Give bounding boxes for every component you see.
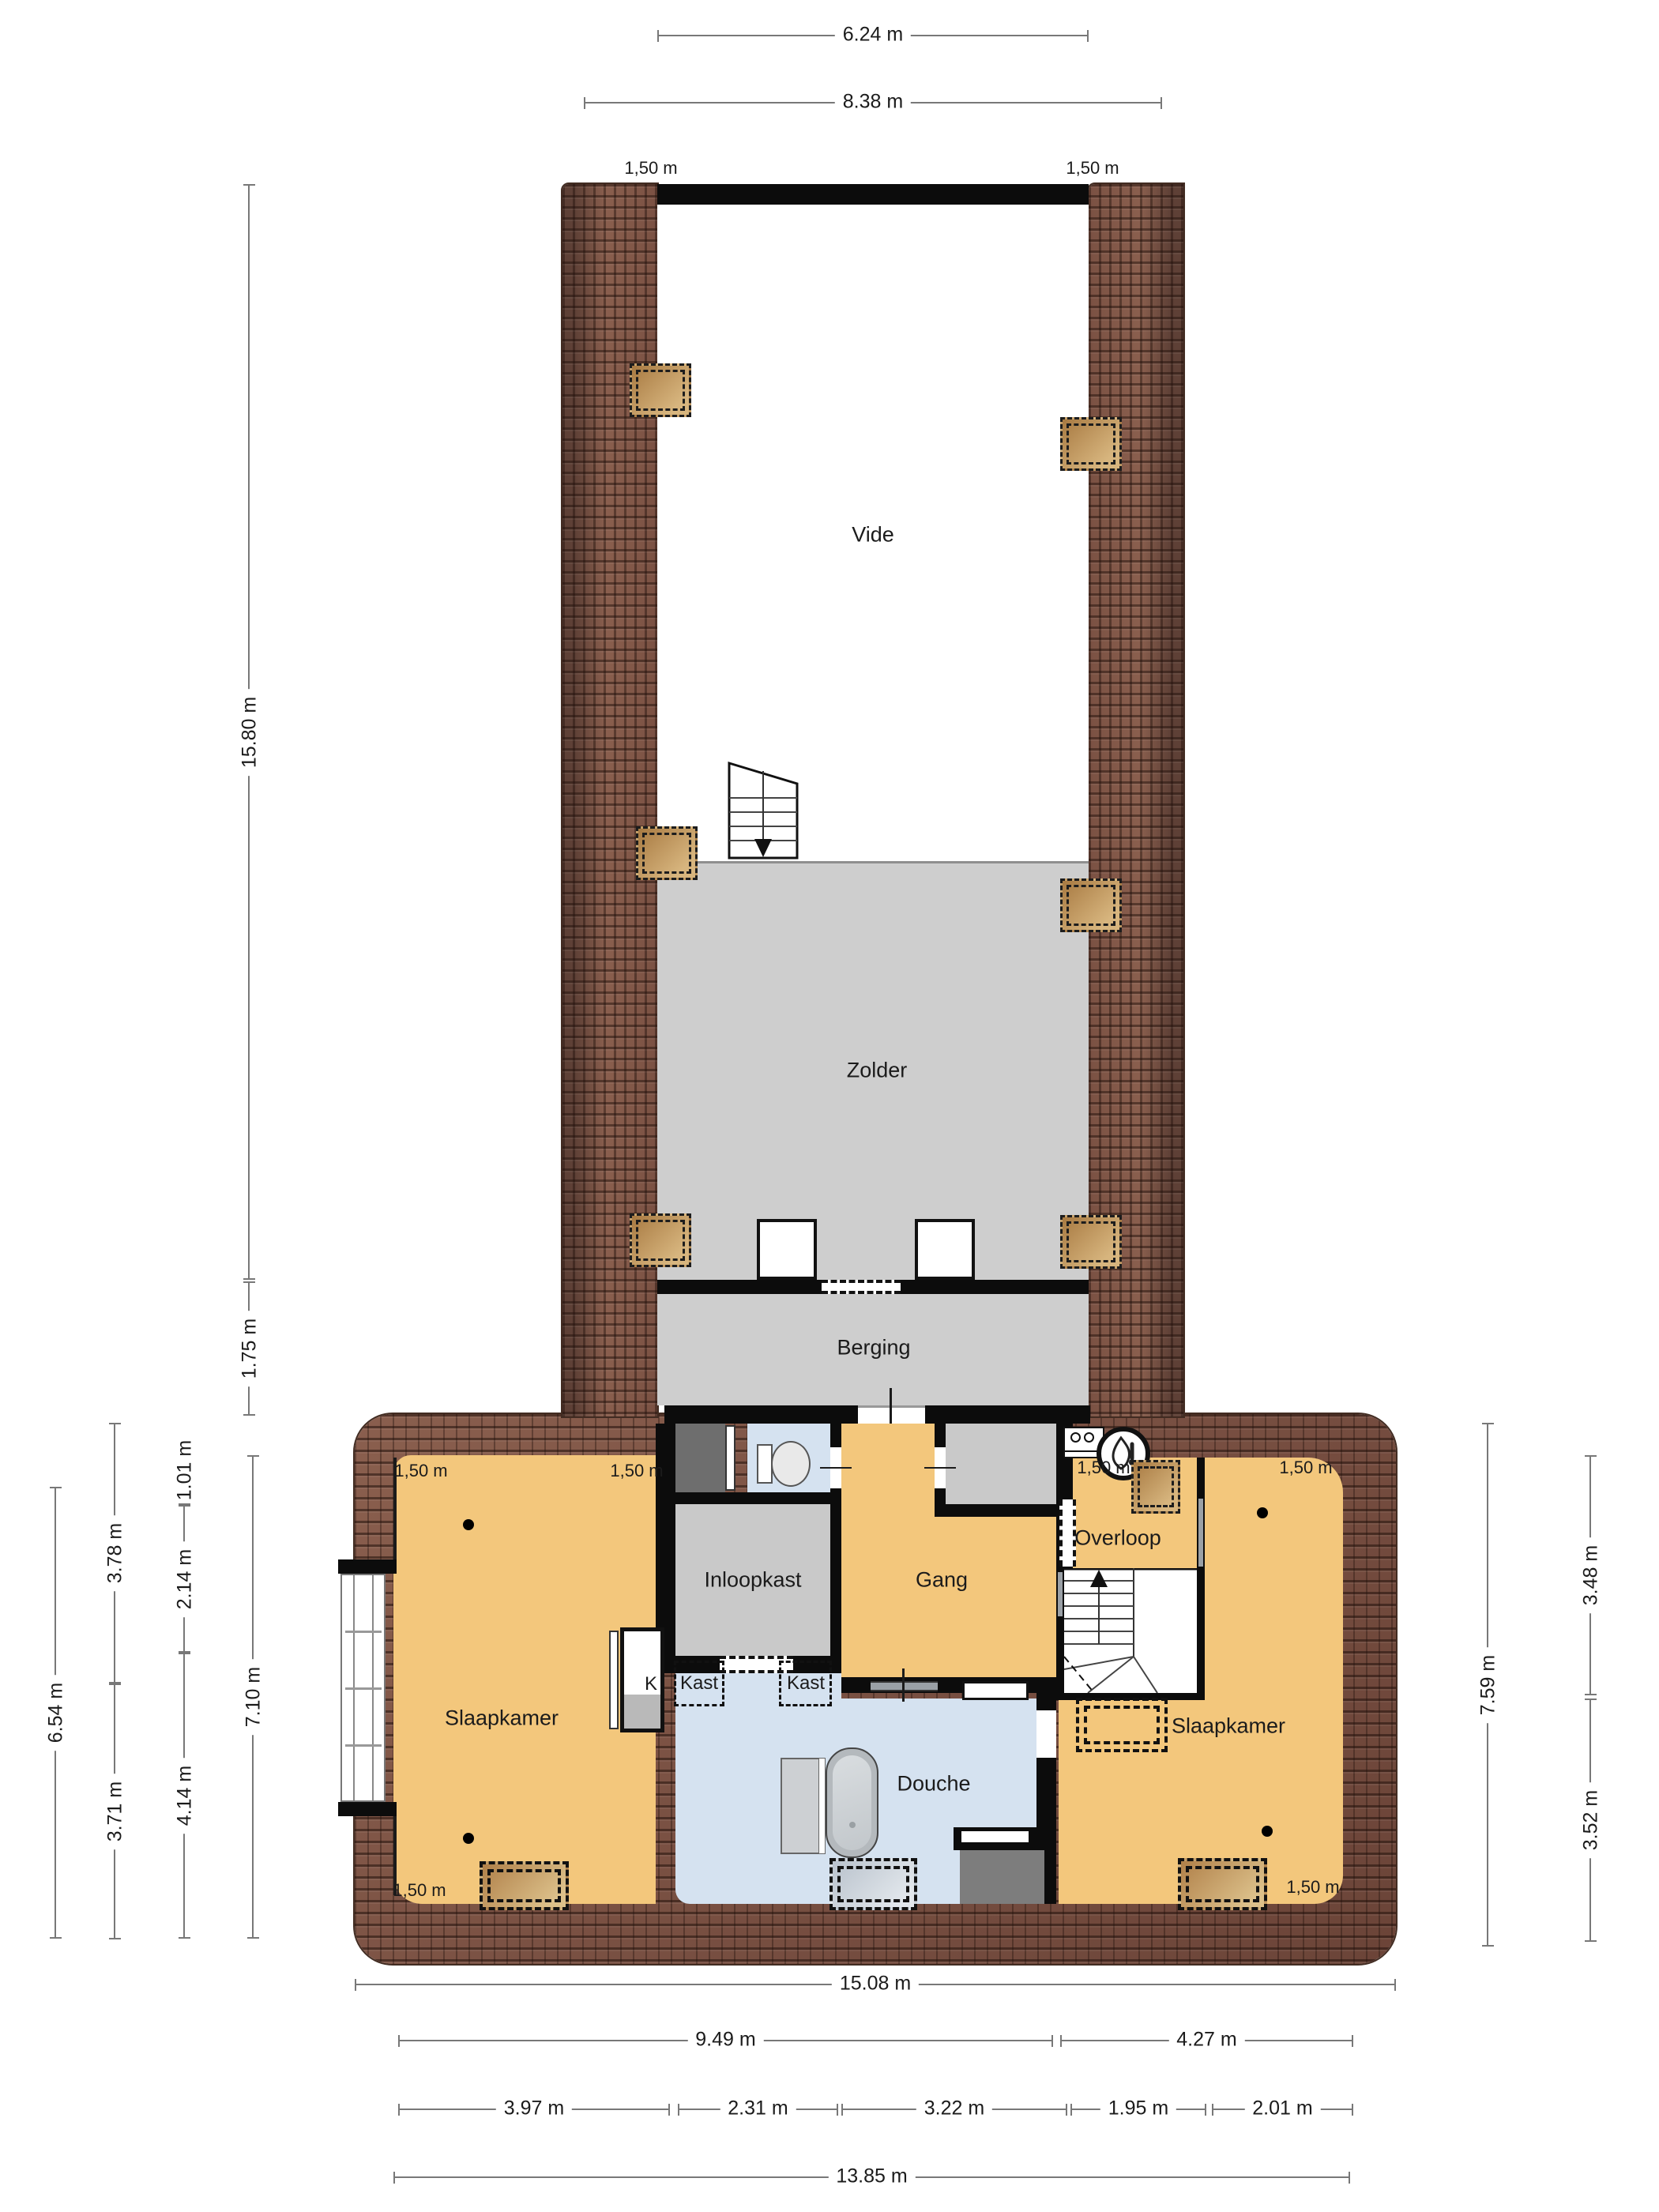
ceiling-light-dot	[463, 1833, 474, 1844]
room-label-vide: Vide	[852, 523, 894, 547]
dimension-line: 6.24 m	[657, 35, 1089, 36]
window-divider	[345, 1744, 382, 1747]
vanity-icon	[781, 1758, 822, 1854]
dimension-line: 8.38 m	[584, 102, 1162, 103]
wall	[935, 1504, 1073, 1517]
skylight-icon	[636, 826, 698, 880]
height-line-label: 1,50 m	[1077, 1458, 1130, 1478]
dormer-outline	[829, 1858, 917, 1910]
dimension-line: 7.59 m	[1487, 1423, 1488, 1947]
opening-gang-overloop	[1059, 1499, 1076, 1567]
dimension-line: 3.48 m	[1589, 1455, 1591, 1695]
room-label-kast-left: Kast	[680, 1672, 718, 1695]
dimension-line: 3.52 m	[1589, 1698, 1591, 1942]
wall	[656, 1492, 841, 1504]
ceiling-light-dot	[463, 1519, 474, 1530]
skylight-icon	[1060, 417, 1122, 471]
dimension-label: 3.52 m	[1579, 1782, 1604, 1858]
dormer-outline	[480, 1861, 569, 1910]
dormer-box-right	[915, 1219, 975, 1280]
dimension-line: 1.75 m	[248, 1281, 250, 1416]
height-line-label: 1,50 m	[624, 158, 677, 179]
washer-knob	[1070, 1432, 1081, 1443]
dimension-label: 7.10 m	[242, 1659, 266, 1735]
washer-knob	[1084, 1432, 1094, 1443]
room-slaapkamer-right-upper	[1205, 1458, 1343, 1904]
closet-k	[620, 1627, 664, 1732]
dimension-line: 15.08 m	[355, 1984, 1396, 1985]
vanity-door	[818, 1758, 826, 1854]
room-label-k: K	[645, 1673, 657, 1695]
skylight-icon	[1131, 1460, 1180, 1514]
dimension-label: 1.95 m	[1100, 2097, 1176, 2121]
staircase-up-icon	[1064, 1568, 1197, 1693]
skylight-icon	[1060, 1215, 1122, 1269]
toilet-bowl-icon	[771, 1441, 811, 1487]
glass-panel	[1058, 1572, 1063, 1616]
bathtub-drain	[849, 1822, 856, 1828]
room-label-berging: Berging	[837, 1336, 910, 1360]
room-shaft	[675, 1424, 725, 1492]
height-line-label: 1,50 m	[1279, 1458, 1332, 1478]
dimension-line: 7.10 m	[252, 1455, 254, 1939]
window-icon	[340, 1574, 386, 1802]
dimension-line: 6.54 m	[55, 1487, 56, 1939]
dimension-label: 8.38 m	[835, 90, 911, 115]
dimension-label: 3.71 m	[103, 1774, 128, 1849]
room-label-slaapkamer-right: Slaapkamer	[1172, 1714, 1285, 1739]
skylight-icon	[630, 1213, 691, 1267]
dimension-line: 3.97 m	[398, 2109, 670, 2110]
dimension-label: 3.78 m	[103, 1515, 128, 1591]
dimension-line: 13.85 m	[393, 2176, 1350, 2178]
window-divider	[345, 1631, 382, 1633]
dimension-label: 7.59 m	[1477, 1646, 1501, 1722]
height-line-label: 1,50 m	[1066, 158, 1119, 179]
glass-panel	[1198, 1499, 1203, 1567]
dimension-line: 2.31 m	[678, 2109, 838, 2110]
dimension-line: 15.80 m	[248, 184, 250, 1280]
bathtub-inner	[833, 1755, 871, 1850]
room-label-zolder: Zolder	[847, 1059, 908, 1083]
dimension-line: 3.22 m	[841, 2109, 1067, 2110]
dormer-outline	[1076, 1698, 1168, 1752]
door-tick	[902, 1668, 905, 1702]
ceiling-light-dot	[1262, 1826, 1273, 1837]
door-tick	[924, 1467, 956, 1469]
dimension-label: 2.31 m	[720, 2097, 796, 2121]
dimension-line: 1.01 m	[183, 1435, 185, 1505]
dimension-label: 13.85 m	[828, 2165, 915, 2189]
window-divider	[345, 1687, 382, 1690]
closet-k-shelf	[624, 1695, 660, 1729]
wall	[1197, 1458, 1205, 1693]
dimension-label: 6.54 m	[44, 1675, 69, 1751]
duct-block	[960, 1850, 1044, 1904]
staircase-down-icon	[728, 760, 799, 860]
dimension-line: 3.78 m	[114, 1423, 115, 1683]
height-line-label: 1,50 m	[610, 1461, 663, 1481]
dimension-label: 1.75 m	[238, 1311, 262, 1386]
room-label-overloop: Overloop	[1074, 1526, 1161, 1551]
room-gang-lower	[841, 1517, 1056, 1680]
floor-plan: Vide Zolder Berging Slaapkamer Slaapkame…	[0, 0, 1659, 2212]
dimension-label: 3.97 m	[496, 2097, 572, 2121]
room-techniek	[946, 1424, 1056, 1504]
skylight-icon	[1060, 878, 1122, 932]
dimension-line: 9.49 m	[398, 2040, 1053, 2041]
height-line-label: 1,50 m	[393, 1880, 446, 1901]
dimension-line: 4.14 m	[183, 1653, 185, 1939]
dimension-label: 3.22 m	[916, 2097, 992, 2121]
dimension-line: 2.14 m	[183, 1505, 185, 1653]
skylight-icon	[630, 363, 691, 417]
dimension-line: 3.71 m	[114, 1683, 115, 1939]
toilet-icon	[757, 1444, 773, 1484]
door-leaf	[609, 1631, 619, 1729]
dimension-label: 2.01 m	[1244, 2097, 1320, 2121]
opening-zolder-berging	[822, 1280, 901, 1294]
dormer-box-left	[757, 1219, 817, 1280]
dimension-label: 4.14 m	[173, 1758, 197, 1834]
dimension-label: 15.08 m	[832, 1972, 919, 1996]
wall	[338, 1559, 397, 1574]
wall	[338, 1802, 397, 1816]
wall	[656, 1424, 675, 1656]
door-gap	[962, 1681, 1029, 1700]
dimension-label: 2.14 m	[173, 1540, 197, 1616]
dimension-label: 9.49 m	[687, 2028, 763, 2052]
dormer-outline	[1178, 1858, 1267, 1910]
room-label-gang: Gang	[916, 1568, 968, 1593]
room-gang-upper	[841, 1424, 935, 1517]
ceiling-light-dot	[1257, 1507, 1268, 1518]
dimension-line: 2.01 m	[1212, 2109, 1353, 2110]
room-label-inloopkast: Inloopkast	[704, 1568, 801, 1593]
bathtub-icon	[826, 1747, 878, 1858]
door-gap	[1036, 1710, 1056, 1758]
door-leaf	[725, 1425, 735, 1491]
room-label-slaapkamer-left: Slaapkamer	[445, 1706, 559, 1731]
dimension-line: 4.27 m	[1060, 2040, 1353, 2041]
height-line-label: 1,50 m	[394, 1461, 447, 1481]
dimension-label: 4.27 m	[1168, 2028, 1244, 2052]
room-label-kast-right: Kast	[787, 1672, 825, 1695]
wall-tower-top	[657, 184, 1089, 205]
dimension-label: 6.24 m	[835, 23, 911, 47]
height-line-label: 1,50 m	[1286, 1877, 1339, 1898]
dimension-line: 1.95 m	[1070, 2109, 1206, 2110]
dimension-label: 3.48 m	[1579, 1537, 1604, 1613]
room-label-douche: Douche	[897, 1772, 970, 1796]
door-tick	[820, 1467, 852, 1469]
dimension-label: 15.80 m	[238, 688, 262, 775]
dimension-label: 1.01 m	[173, 1432, 197, 1508]
glass-notch	[961, 1831, 1029, 1842]
